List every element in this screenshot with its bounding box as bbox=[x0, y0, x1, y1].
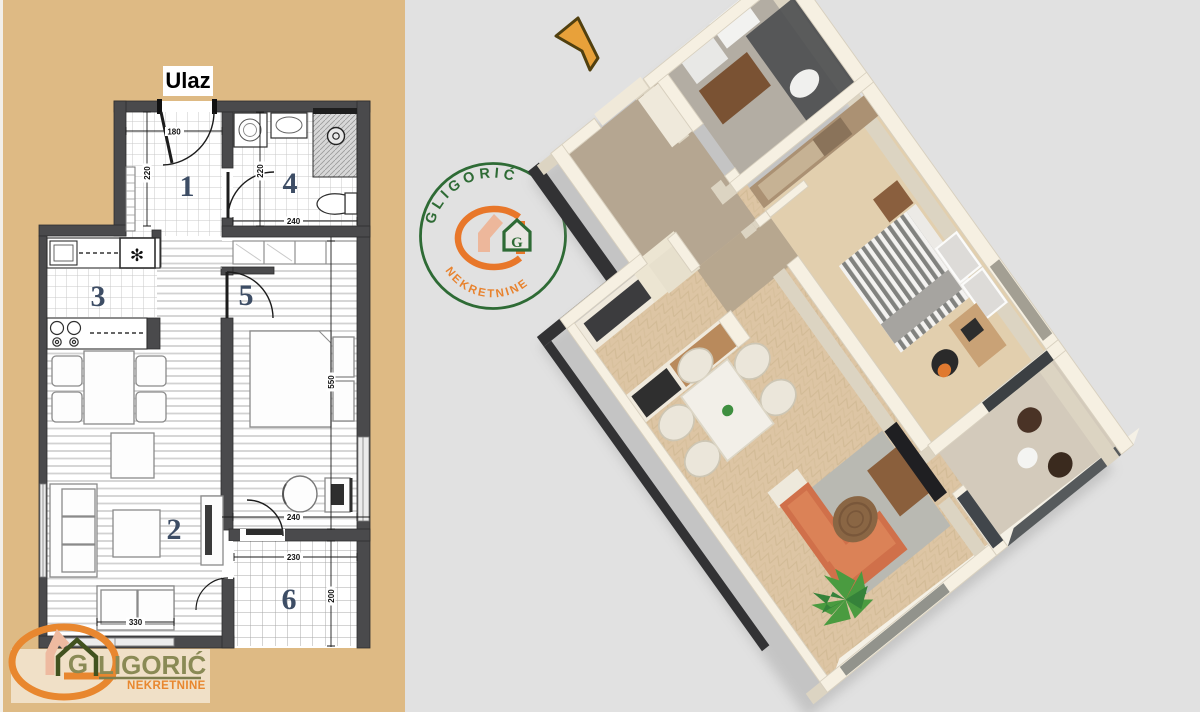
svg-text:2: 2 bbox=[167, 513, 182, 546]
svg-text:LIGORIĆ: LIGORIĆ bbox=[98, 650, 207, 680]
svg-text:180: 180 bbox=[167, 128, 181, 137]
svg-text:6: 6 bbox=[282, 583, 297, 616]
svg-text:Ulaz: Ulaz bbox=[165, 68, 210, 93]
svg-text:220: 220 bbox=[256, 164, 265, 178]
svg-text:✻: ✻ bbox=[130, 246, 144, 265]
svg-text:200: 200 bbox=[327, 589, 336, 603]
svg-text:550: 550 bbox=[327, 375, 336, 389]
svg-text:240: 240 bbox=[287, 217, 301, 226]
svg-text:5: 5 bbox=[239, 279, 254, 312]
svg-text:NEKRETNINE: NEKRETNINE bbox=[127, 680, 206, 692]
svg-text:1: 1 bbox=[180, 170, 195, 203]
svg-text:3: 3 bbox=[91, 280, 106, 313]
svg-text:4: 4 bbox=[283, 167, 298, 200]
svg-text:240: 240 bbox=[287, 513, 301, 522]
svg-text:220: 220 bbox=[143, 166, 152, 180]
svg-text:230: 230 bbox=[287, 553, 301, 562]
svg-text:G: G bbox=[68, 649, 88, 679]
svg-text:330: 330 bbox=[129, 618, 143, 627]
svg-text:G: G bbox=[511, 235, 523, 251]
